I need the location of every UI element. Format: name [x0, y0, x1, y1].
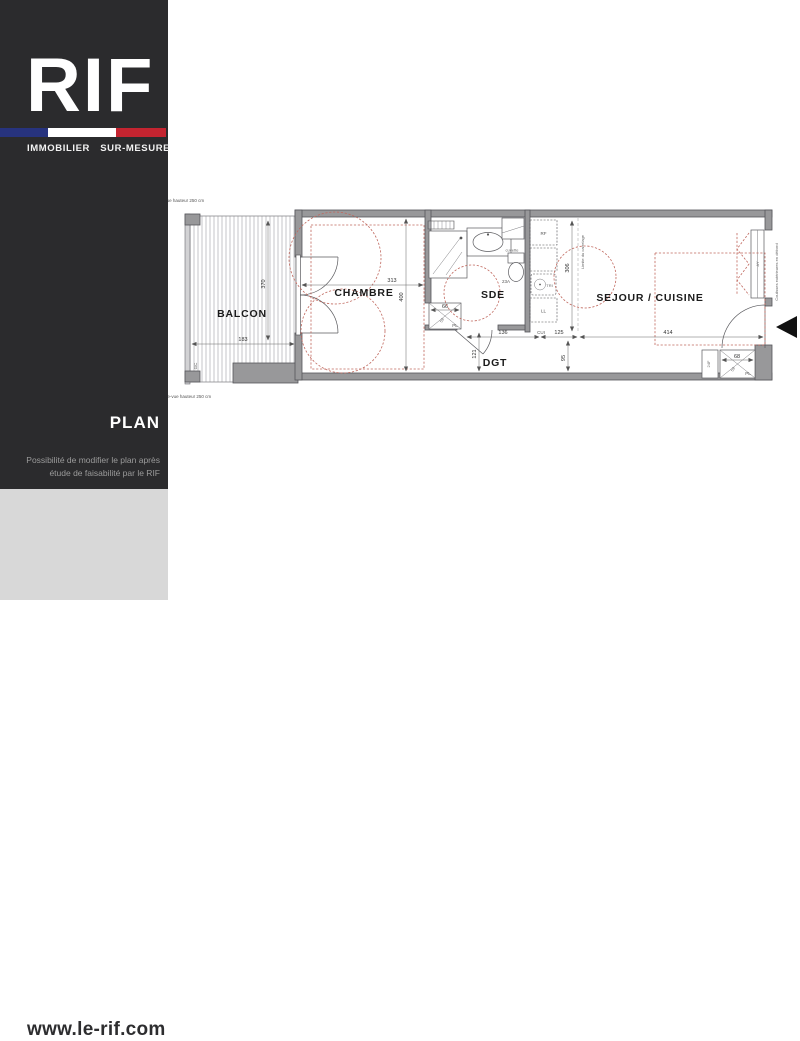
wall-sde-cuisine: [525, 210, 530, 332]
tile-limit-label: Limite du carrelage: [580, 234, 585, 269]
dim-136: 136: [498, 330, 507, 336]
door-arc-sde: [483, 330, 492, 354]
washer-label: LL: [541, 309, 547, 314]
cooker-label: CUI: [537, 330, 545, 335]
plan-note: Possibilité de modifier le plan après ét…: [10, 454, 160, 480]
dim-121: 121: [472, 349, 478, 358]
french-window: [296, 255, 301, 335]
washbasin-tap-icon: [487, 233, 489, 235]
flag-red-segment: [116, 128, 166, 137]
room-label-balcon: BALCON: [217, 308, 267, 320]
wall-balcony-south: [233, 363, 298, 383]
coulisses-note: Coulisses extérieures en débord: [774, 243, 779, 300]
plan-note-line2: étude de faisabilité par le RIF: [10, 467, 160, 480]
closet-dgt-pl: PL: [452, 323, 458, 328]
website-link[interactable]: www.le-rif.com: [27, 1019, 166, 1041]
dim-125: 125: [554, 330, 563, 336]
wall-south: [298, 373, 772, 380]
room-label-sejour: SEJOUR / CUISINE: [596, 292, 703, 304]
wall-west-bottom: [295, 333, 302, 380]
dim-68: 68: [734, 354, 740, 360]
pare-vue-bottom-label: pare-vue hauteur 250 cm: [168, 394, 211, 399]
dim-400: 400: [399, 292, 405, 301]
kitchen-units: RF TRI LL CUI Limite du carrelage 306: [530, 218, 585, 335]
balcony-deck: [190, 216, 296, 382]
dim-95: 95: [561, 355, 567, 361]
dim-370: 370: [261, 279, 267, 288]
pare-vue-top-label: pare-vue hauteur 250 cm: [168, 198, 204, 203]
floor-plan-area: pare-vue hauteur 250 cm pare-vue hauteur…: [168, 0, 800, 600]
pantry-box: [530, 248, 557, 271]
closet-dgt: 66 59 PL: [429, 303, 461, 329]
toilet-tank: [508, 253, 524, 263]
closet-entry: 24F 68 59 PL: [702, 350, 755, 378]
balcony-post-bottom: [185, 371, 200, 382]
entrance-arrow-icon: [776, 316, 797, 338]
door-arc-chambre-bottom: [300, 295, 338, 333]
sink-label: TRI: [546, 283, 552, 288]
wall-east-top: [765, 210, 772, 230]
sde-fixtures: cuvette 23A: [428, 218, 524, 284]
dim-414: 414: [663, 330, 672, 336]
wall-north: [295, 210, 772, 217]
wall-east-mid: [765, 298, 772, 306]
logo-tagline: IMMOBILIER SUR-MESURE: [27, 143, 170, 154]
floor-plan: pare-vue hauteur 250 cm pare-vue hauteur…: [168, 0, 800, 600]
window-ay-tag: AY: [755, 261, 760, 266]
chambre-circle-bottom: [301, 289, 385, 373]
dim-66: 66: [442, 304, 448, 310]
fridge-label: RF: [541, 231, 547, 236]
room-label-chambre: CHAMBRE: [334, 287, 393, 299]
section-title: PLAN: [110, 413, 160, 433]
flag-white-segment: [48, 128, 116, 137]
closet-entry-tag: 24F: [706, 360, 711, 367]
room-label-sde: SDE: [481, 289, 505, 301]
toilet-label: cuvette: [506, 248, 520, 253]
radiator: [428, 221, 454, 229]
sidebar-footer: www.le-rif.com: [0, 489, 168, 600]
rif-logo: RIF: [26, 44, 154, 128]
plan-note-line1: Possibilité de modifier le plan après: [10, 454, 160, 467]
sidebar: RIF IMMOBILIER SUR-MESURE PLAN Possibili…: [0, 0, 168, 489]
wall-east-corner: [755, 345, 772, 380]
balcony-rail: [185, 214, 190, 384]
shutter-swing-dashed: [737, 233, 749, 295]
door-tag-23a: 23A: [502, 279, 510, 284]
dim-313: 313: [387, 278, 396, 284]
french-flag-bar: [0, 128, 166, 137]
dim-306: 306: [565, 263, 571, 272]
room-label-dgt: DGT: [483, 357, 508, 369]
shelf: [502, 218, 524, 239]
door-arc-entry: [722, 305, 765, 348]
gc-label: GC: [193, 362, 198, 370]
shower-head-icon: [460, 237, 463, 240]
dim-183: 183: [238, 337, 247, 343]
flag-blue-segment: [0, 128, 48, 137]
closet-entry-pl: PL: [745, 371, 751, 376]
wall-west-top: [295, 210, 302, 257]
door-arc-chambre-top: [300, 257, 338, 295]
balcony-post-top: [185, 214, 200, 225]
sink-drain-icon: [539, 284, 541, 286]
toilet-bowl: [509, 263, 524, 282]
